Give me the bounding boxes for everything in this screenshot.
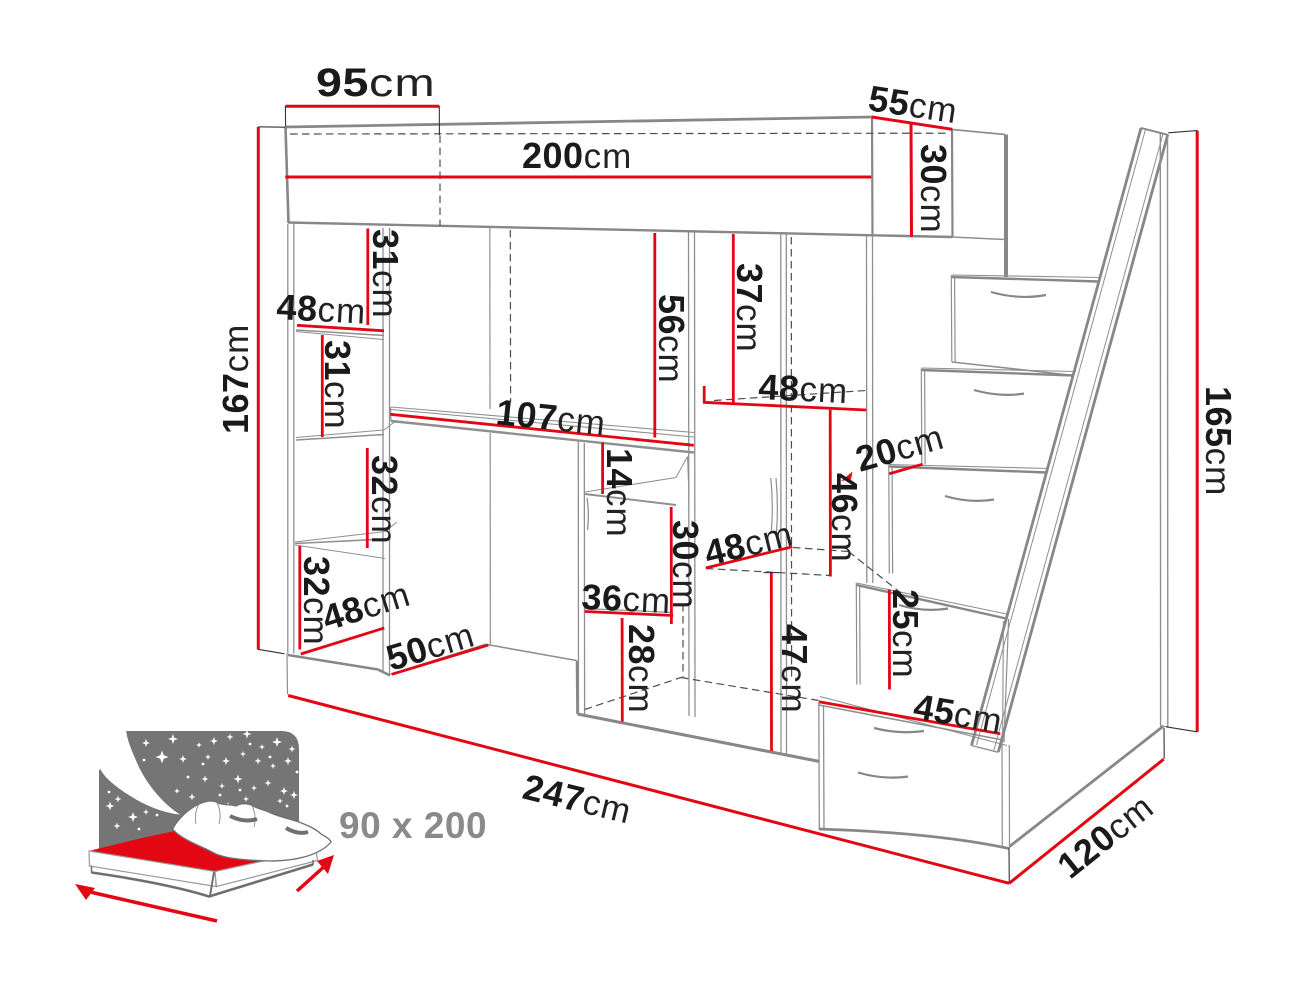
- svg-text:14cm: 14cm: [599, 448, 640, 538]
- svg-text:48cm: 48cm: [758, 366, 850, 411]
- svg-text:90 x 200: 90 x 200: [339, 805, 487, 846]
- svg-text:56cm: 56cm: [651, 294, 692, 384]
- svg-text:32cm: 32cm: [364, 455, 405, 545]
- svg-text:31cm: 31cm: [365, 229, 406, 319]
- svg-text:37cm: 37cm: [729, 263, 770, 353]
- svg-text:165cm: 165cm: [1198, 386, 1239, 496]
- svg-text:36cm: 36cm: [581, 576, 672, 621]
- svg-text:25cm: 25cm: [885, 589, 926, 679]
- svg-text:46cm: 46cm: [824, 473, 865, 563]
- svg-text:200cm: 200cm: [522, 135, 632, 176]
- svg-text:95cm: 95cm: [316, 61, 436, 105]
- svg-text:30cm: 30cm: [913, 144, 954, 234]
- svg-text:31cm: 31cm: [317, 340, 358, 430]
- svg-text:47cm: 47cm: [774, 624, 815, 714]
- svg-text:167cm: 167cm: [215, 324, 256, 434]
- svg-text:28cm: 28cm: [621, 624, 662, 714]
- svg-text:48cm: 48cm: [276, 286, 368, 332]
